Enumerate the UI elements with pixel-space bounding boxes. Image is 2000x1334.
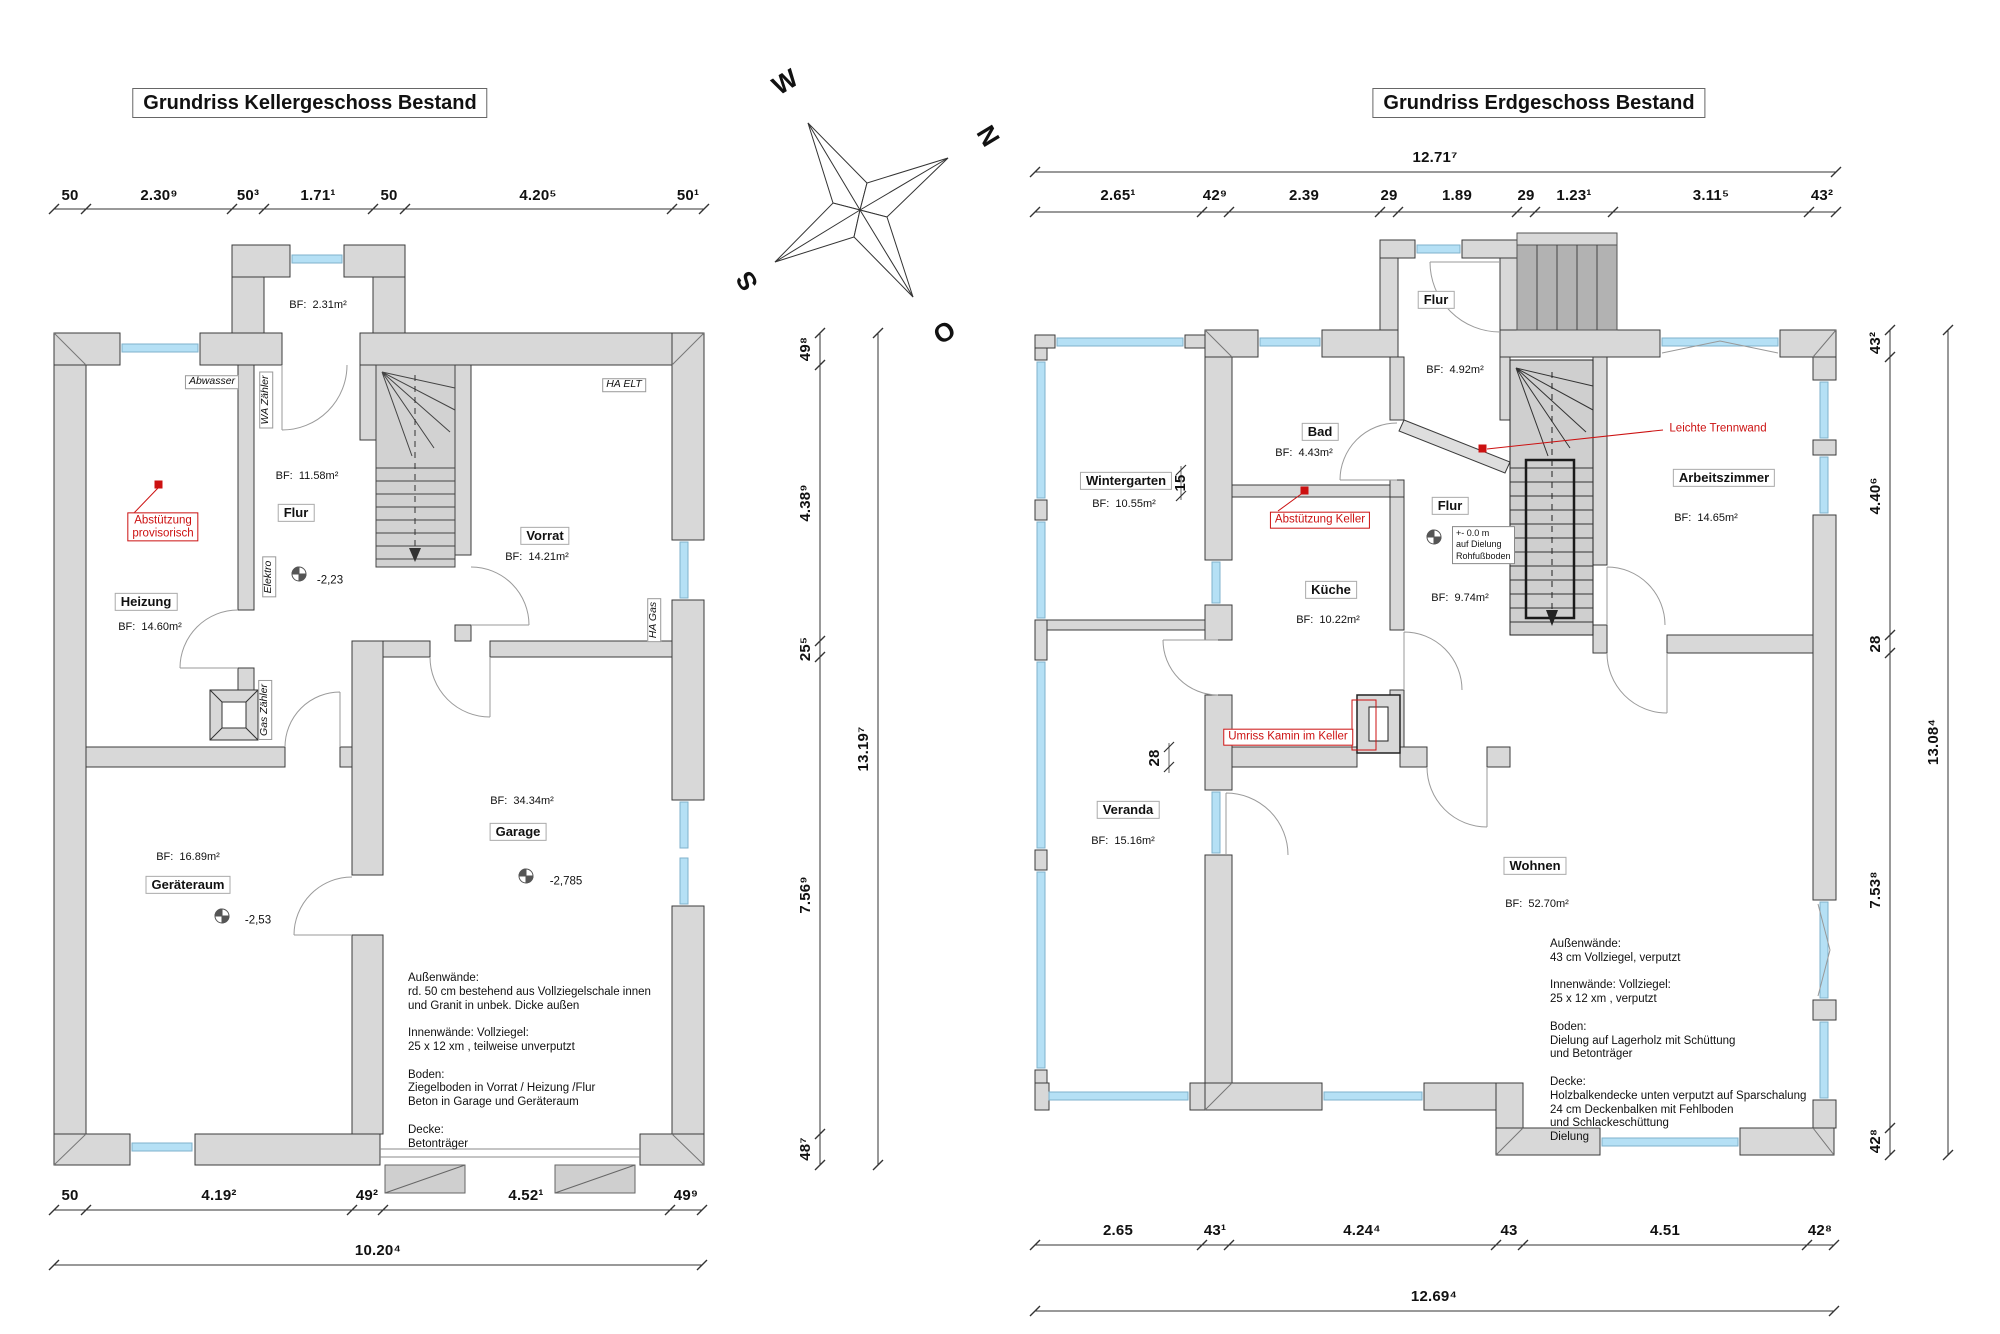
room-area-wohnen: BF: 52.70m²	[1505, 898, 1569, 910]
eg-dim-right-0: 43²	[1868, 332, 1885, 354]
eg-dim-kueche-wall: 28	[1147, 749, 1164, 766]
util-gas-zaehler: Gas Zähler	[258, 680, 272, 740]
keller-chimney	[210, 690, 258, 740]
room-label-heizung: Heizung	[115, 593, 178, 611]
keller-dim-bot-2: 49²	[356, 1188, 378, 1205]
eg-dim-right-4: 42⁸	[1868, 1129, 1885, 1153]
room-area-vorrat: BF: 14.21m²	[505, 551, 569, 563]
eg-dim-top-8: 43²	[1811, 188, 1833, 205]
keller-title: Grundriss Kellergeschoss Bestand	[132, 88, 487, 118]
keller-stairs	[376, 365, 455, 567]
eg-dim-bot-4: 4.51	[1650, 1223, 1680, 1240]
eg-chimney	[1352, 695, 1400, 753]
eg-dim-top-6: 1.23¹	[1556, 188, 1591, 205]
keller-dim-top-6: 50¹	[677, 188, 699, 205]
level-geraeteraum: -2,53	[245, 915, 271, 928]
level-flur-eg: +- 0.0 m auf Dielung Rohfußboden	[1452, 526, 1515, 564]
room-label-vorrat: Vorrat	[520, 527, 569, 545]
eg-dim-bot-2: 4.24⁴	[1343, 1223, 1381, 1240]
eg-dim-top-2: 2.39	[1289, 188, 1319, 205]
keller-dim-bot-3: 4.52¹	[508, 1188, 543, 1205]
keller-dim-top-1: 2.30⁹	[140, 188, 177, 205]
keller-dim-right-4: 48⁷	[798, 1137, 815, 1160]
eg-notes: Außenwände: 43 cm Vollziegel, verputzt I…	[1550, 938, 1850, 1145]
level-markers	[215, 530, 1441, 923]
room-label-arbeitszimmer: Arbeitszimmer	[1673, 469, 1775, 487]
eg-dim-top-4: 1.89	[1442, 188, 1472, 205]
util-ha-gas: HA Gas	[647, 598, 661, 642]
eg-dim-bot-5: 42⁸	[1808, 1223, 1832, 1240]
keller-dim-bot-0: 50	[61, 1188, 78, 1205]
eg-dim-right-3: 7.53⁸	[1868, 871, 1885, 908]
room-area-flur-eg: BF: 9.74m²	[1431, 592, 1488, 604]
keller-dim-right-3: 7.56⁹	[798, 876, 815, 913]
room-area-arbeitszimmer: BF: 14.65m²	[1674, 512, 1738, 524]
annotation-abstuetzung-keller: Abstützung Keller	[1270, 512, 1370, 529]
keller-dim-top-0: 50	[61, 188, 78, 205]
util-wa-zaehler: WA Zähler	[259, 371, 273, 428]
room-area-kueche: BF: 10.22m²	[1296, 614, 1360, 626]
eg-stairs	[1510, 360, 1593, 635]
eg-dim-total-top: 12.71⁷	[1413, 150, 1458, 167]
eg-dim-top-5: 29	[1517, 188, 1534, 205]
room-area-flur-eingang: BF: 4.92m²	[1426, 364, 1483, 376]
keller-dim-top-2: 50³	[237, 188, 259, 205]
keller-dim-top-3: 1.71¹	[300, 188, 335, 205]
keller-dim-total-bottom: 10.20⁴	[355, 1243, 401, 1260]
annotation-leichte-trennwand: Leichte Trennwand	[1669, 423, 1766, 436]
eg-dim-bot-0: 2.65	[1103, 1223, 1133, 1240]
annotation-abstuetzung-provisorisch: Abstützung provisorisch	[127, 512, 198, 541]
eg-dim-total-right: 13.08⁴	[1926, 719, 1943, 765]
annotation-umriss-kamin: Umriss Kamin im Keller	[1223, 729, 1353, 746]
keller-notes: Außenwände: rd. 50 cm bestehend aus Voll…	[408, 972, 688, 1151]
util-ha-elt: HA ELT	[602, 378, 646, 392]
eg-dim-top-0: 2.65¹	[1100, 188, 1135, 205]
room-label-flur-kg: Flur	[278, 504, 315, 522]
room-label-bad: Bad	[1302, 423, 1339, 441]
room-area-veranda: BF: 15.16m²	[1091, 835, 1155, 847]
util-elektro: Elektro	[262, 557, 276, 598]
room-area-garage: BF: 34.34m²	[490, 795, 554, 807]
eg-dim-bot-3: 43	[1500, 1223, 1517, 1240]
keller-red-marks	[133, 481, 162, 514]
keller-dim-right-1: 4.38⁹	[798, 484, 815, 521]
level-garage: -2,785	[550, 876, 583, 889]
eg-dim-total-bottom: 12.69⁴	[1411, 1289, 1457, 1306]
eg-exterior-stairs	[1517, 233, 1617, 330]
room-label-geraeteraum: Geräteraum	[146, 876, 231, 894]
eg-dim-top-3: 29	[1380, 188, 1397, 205]
room-area-flur-kg: BF: 11.58m²	[276, 470, 339, 482]
util-abwasser: Abwasser	[185, 375, 239, 389]
keller-dim-top-4: 50	[380, 188, 397, 205]
room-label-garage: Garage	[490, 823, 547, 841]
keller-dim-total-right: 13.19⁷	[856, 727, 873, 772]
keller-dim-right-2: 25⁵	[798, 637, 815, 661]
keller-dim-top-5: 4.20⁵	[519, 188, 556, 205]
room-label-wintergarten: Wintergarten	[1080, 472, 1172, 490]
keller-dim-bot-1: 4.19²	[201, 1188, 236, 1205]
eg-dim-right-1: 4.40⁶	[1868, 477, 1885, 514]
room-label-wohnen: Wohnen	[1503, 857, 1566, 875]
room-label-kueche: Küche	[1305, 581, 1357, 599]
room-area-geraeteraum: BF: 16.89m²	[156, 851, 220, 863]
eg-title: Grundriss Erdgeschoss Bestand	[1372, 88, 1705, 118]
room-area-bad: BF: 4.43m²	[1275, 447, 1332, 459]
room-area-heizung: BF: 14.60m²	[118, 621, 182, 633]
eg-dim-top-1: 42⁹	[1203, 188, 1227, 205]
floorplan-sheet: Grundriss Kellergeschoss Bestand Grundri…	[0, 0, 2000, 1334]
room-label-flur-eg: Flur	[1432, 497, 1469, 515]
keller-dim-bot-4: 49⁹	[674, 1188, 698, 1205]
level-flur-kg: -2,23	[317, 575, 343, 588]
room-area-wintergarten: BF: 10.55m²	[1092, 498, 1156, 510]
eg-dim-wintergarten-wall: 15	[1173, 474, 1190, 491]
room-label-flur-eingang: Flur	[1418, 291, 1455, 309]
compass-star	[775, 123, 948, 297]
eg-dim-right-2: 28	[1868, 635, 1885, 652]
room-area-abstell: BF: 2.31m²	[289, 299, 346, 311]
eg-dim-bot-1: 43¹	[1204, 1223, 1226, 1240]
keller-dim-right-0: 49⁸	[798, 337, 815, 361]
room-label-veranda: Veranda	[1097, 801, 1160, 819]
eg-dim-top-7: 3.11⁵	[1693, 188, 1729, 205]
